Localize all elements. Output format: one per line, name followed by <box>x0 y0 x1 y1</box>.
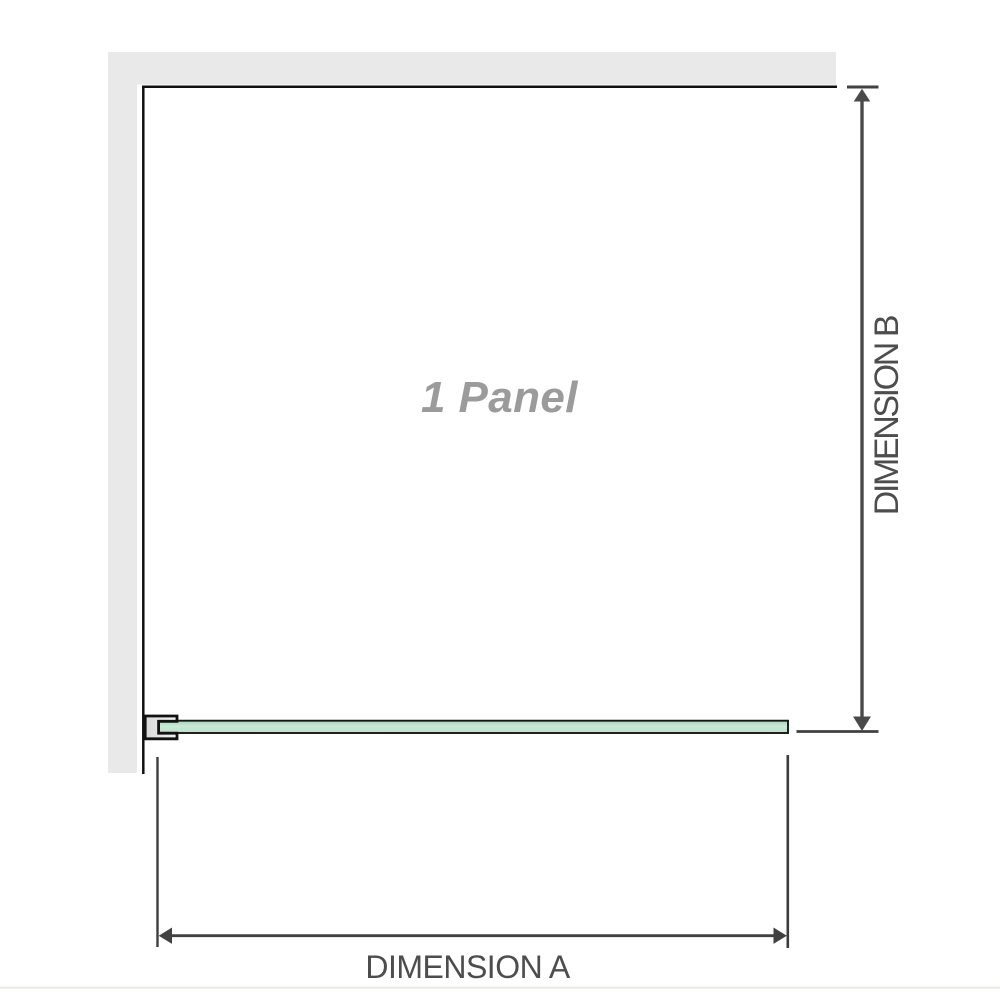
svg-text:DIMENSION A: DIMENSION A <box>365 949 570 985</box>
svg-text:1 Panel: 1 Panel <box>421 373 578 422</box>
svg-text:DIMENSION B: DIMENSION B <box>868 316 906 515</box>
